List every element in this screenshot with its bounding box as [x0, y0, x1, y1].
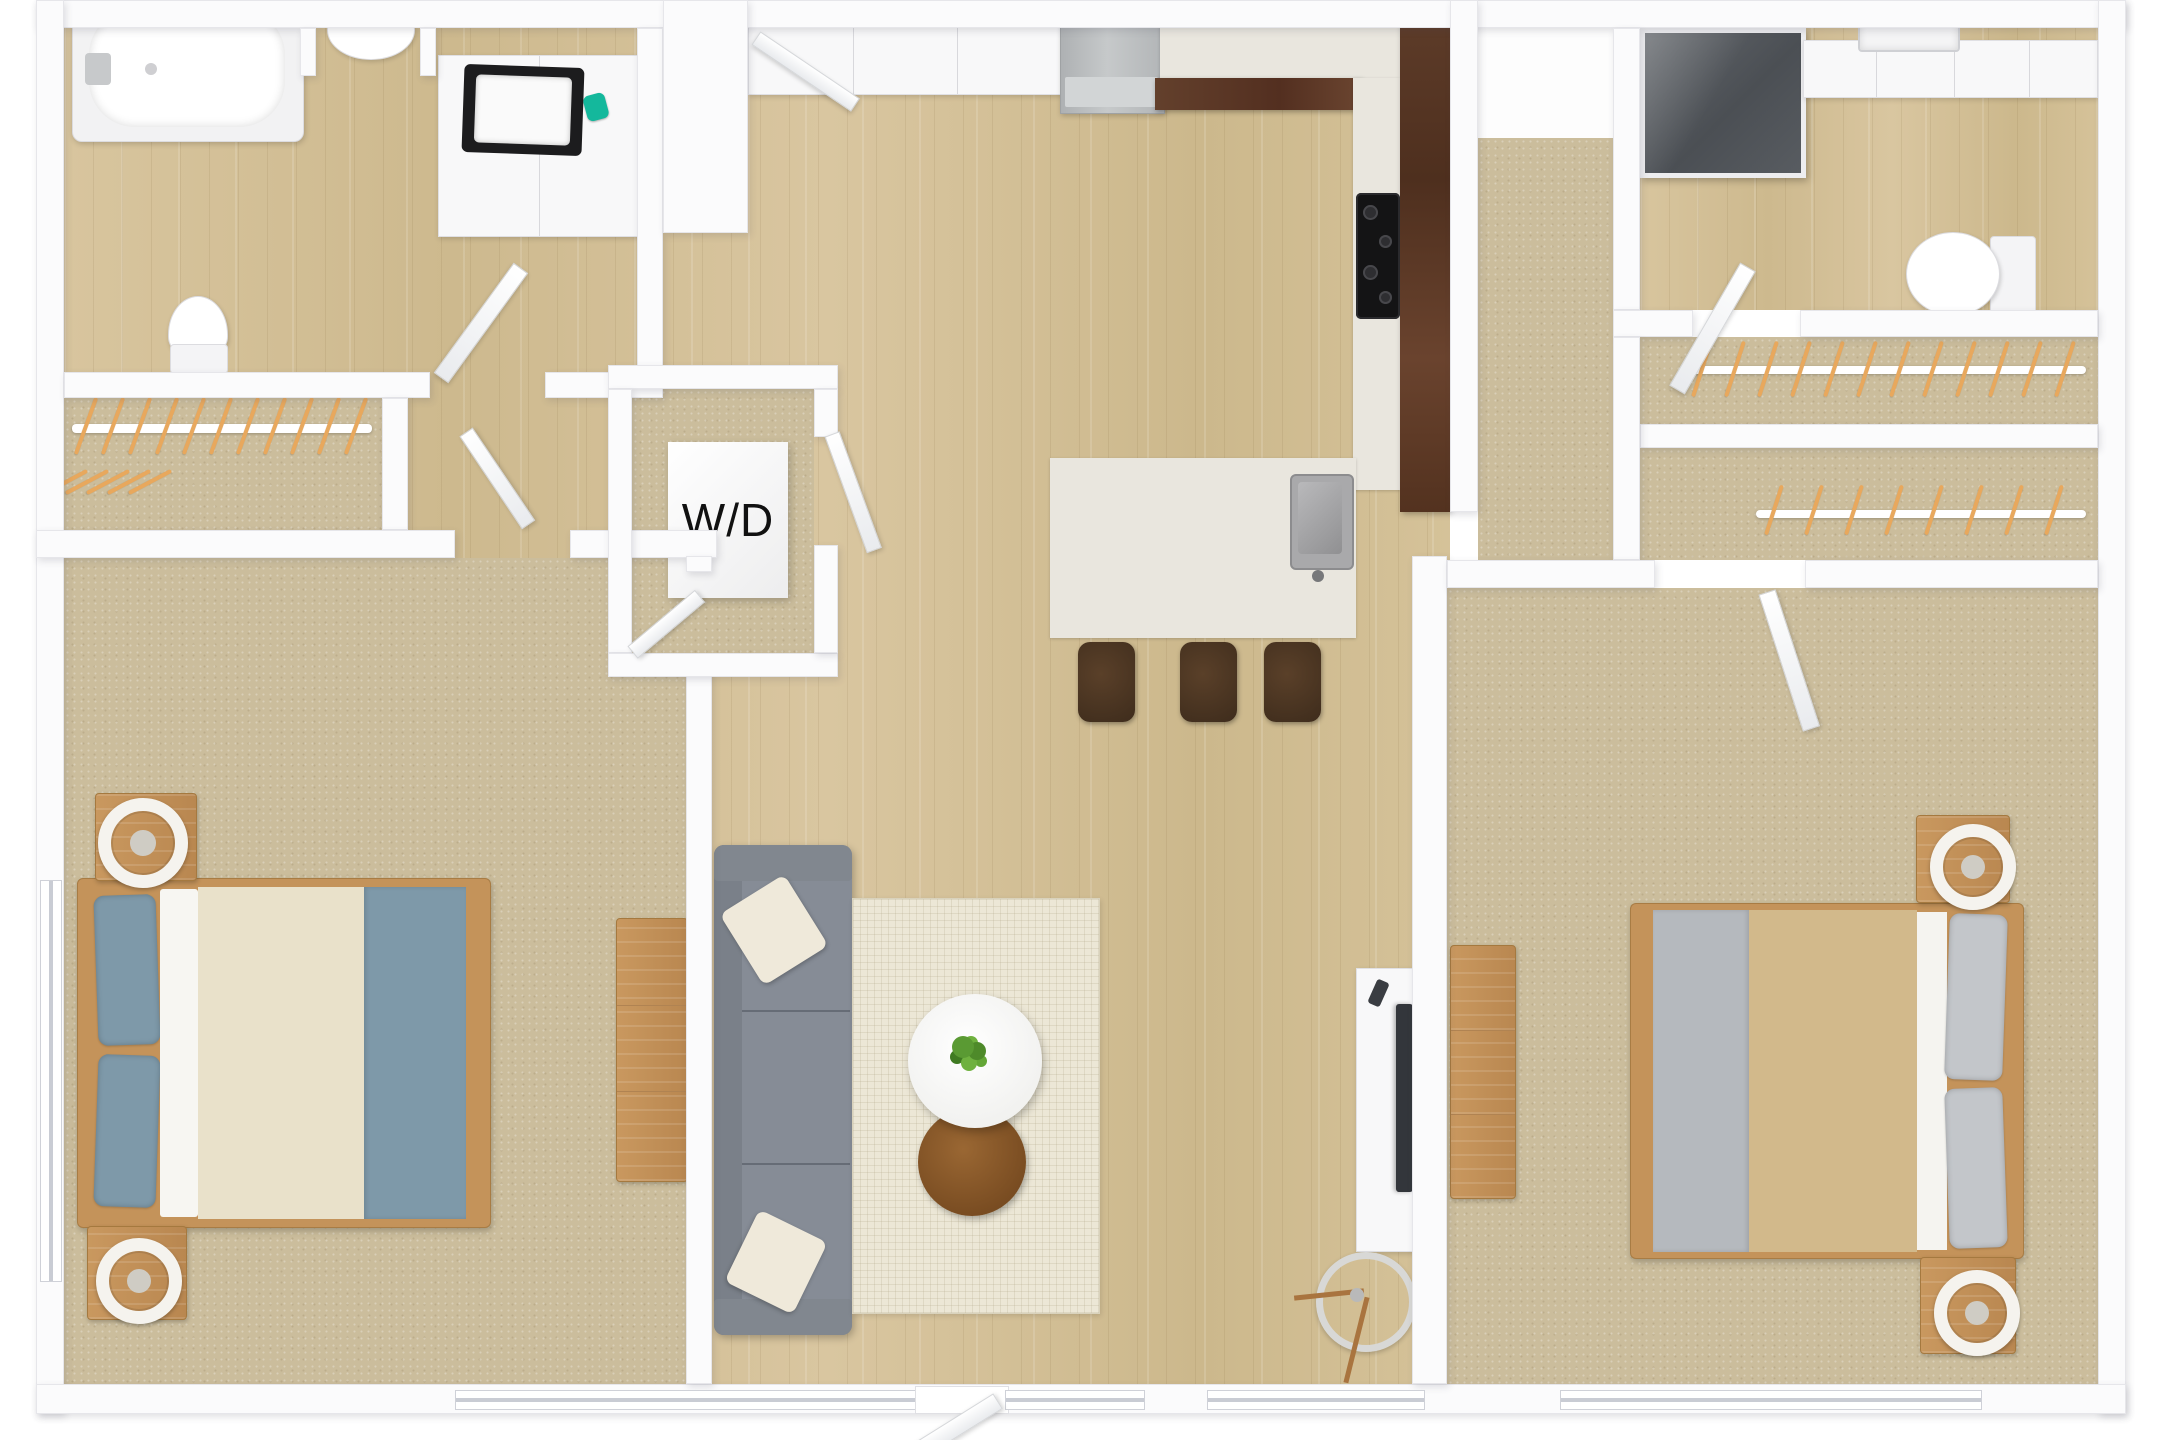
- wall-wd-left: [608, 389, 632, 653]
- clothes-hanger: [1889, 341, 1911, 397]
- clothes-hanger: [344, 397, 368, 455]
- clothes-hanger: [209, 397, 233, 455]
- wall-bath2-west: [1613, 28, 1640, 310]
- clothes-hanger: [2054, 341, 2076, 397]
- wall-wd-bottom: [608, 653, 838, 677]
- window-living-2: [1207, 1390, 1425, 1410]
- wall-bedroom2-top: [1447, 560, 1655, 588]
- wall-outer-top: [36, 0, 2126, 28]
- wall-bath2-bottom: [1800, 310, 2098, 337]
- window-left: [40, 880, 62, 1282]
- clothes-hanger: [1884, 485, 1904, 536]
- wall-outer-right: [2098, 0, 2126, 1414]
- wall-closet1-right: [382, 398, 408, 530]
- wall-bath2-bottom: [1613, 310, 1693, 337]
- clothes-hanger: [236, 397, 260, 455]
- clothes-hanger: [1844, 485, 1864, 536]
- clothes-hanger: [1757, 341, 1779, 397]
- wall-bedroom1-right: [686, 556, 712, 572]
- wall-wd-right: [814, 389, 838, 437]
- wall-bedroom1-top: [570, 530, 717, 558]
- floorplan-3d: W/D: [0, 0, 2160, 1440]
- clothes-hanger: [1924, 485, 1944, 536]
- wall-toilet-niche: [300, 28, 316, 76]
- wall-toilet-niche: [420, 28, 436, 76]
- clothes-hanger: [317, 397, 341, 455]
- wall-bedroom1-top: [36, 530, 455, 558]
- window-bedroom1: [455, 1390, 917, 1410]
- hangers-layer: [0, 0, 2160, 1440]
- clothes-hanger: [1790, 341, 1812, 397]
- wall-wd-top: [608, 365, 838, 389]
- wall-pantry: [663, 0, 748, 233]
- clothes-hanger: [290, 397, 314, 455]
- clothes-hanger: [2004, 485, 2024, 536]
- wall-kitchen-right: [1450, 0, 1478, 512]
- clothes-hanger: [182, 397, 206, 455]
- clothes-hanger: [1823, 341, 1845, 397]
- wall-hall-closet2: [1613, 337, 1640, 560]
- window-living-1: [1005, 1390, 1145, 1410]
- clothes-hanger: [1988, 341, 2010, 397]
- clothes-hanger: [74, 397, 98, 455]
- wall-bath1-bottom: [64, 372, 430, 398]
- wall-bedroom1-right: [686, 664, 712, 1384]
- clothes-hanger: [155, 397, 179, 455]
- clothes-hanger: [1955, 341, 1977, 397]
- clothes-hanger: [1804, 485, 1824, 536]
- clothes-hanger: [1922, 341, 1944, 397]
- clothes-hanger: [128, 397, 152, 455]
- clothes-hanger: [1764, 485, 1784, 536]
- clothes-hanger: [1964, 485, 1984, 536]
- clothes-hanger: [1724, 341, 1746, 397]
- wall-bedroom2-top: [1805, 560, 2098, 588]
- clothes-hanger: [1856, 341, 1878, 397]
- wall-bath1-right: [637, 28, 663, 372]
- wall-living-bedroom2: [1412, 556, 1447, 1384]
- clothes-hanger: [2021, 341, 2043, 397]
- clothes-hanger: [101, 397, 125, 455]
- window-bedroom2: [1560, 1390, 1982, 1410]
- clothes-hanger: [263, 397, 287, 455]
- clothes-hanger: [2044, 485, 2064, 536]
- wall-closet2-divider: [1640, 424, 2098, 448]
- wall-wd-right: [814, 545, 838, 653]
